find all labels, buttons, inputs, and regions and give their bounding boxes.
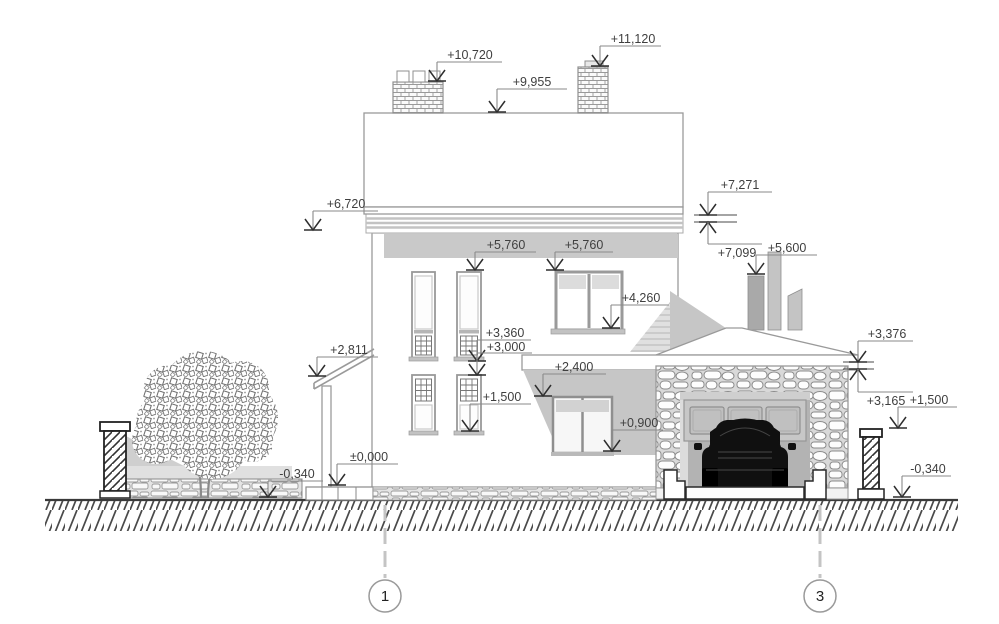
lower-window-left (409, 375, 438, 435)
level-label: +5,760 (565, 238, 604, 252)
level-roof-top: +9,955 (488, 75, 567, 112)
level-label: +2,400 (555, 360, 594, 374)
upper-window-left2 (454, 272, 484, 361)
level-label: +5,760 (487, 238, 526, 252)
chimney-right (578, 61, 608, 113)
level-label: -0,340 (910, 462, 945, 476)
elevation-canvas: 1 3 +10,720 +9,955 +11,120 +7,271 +7,0 (0, 0, 999, 624)
fence-post-left-base (100, 491, 130, 498)
level-label: +1,500 (483, 390, 522, 404)
level-garage-eaves-bottom: +3,165 (849, 369, 913, 408)
level-label: +9,955 (513, 75, 552, 89)
level-garage-eaves-top: +3,376 (843, 327, 913, 369)
fence-post-right-base (858, 489, 884, 499)
roof-fascia (364, 207, 683, 214)
level-label: +5,600 (768, 241, 807, 255)
house-plinth (373, 487, 656, 500)
axis-3-label: 3 (816, 588, 824, 605)
tree-canopy (132, 351, 278, 479)
frieze-band (384, 234, 678, 258)
level-label: ±0,000 (350, 450, 388, 464)
elevation-drawing: 1 3 +10,720 +9,955 +11,120 +7,271 +7,0 (0, 0, 999, 624)
level-label: +3,376 (868, 327, 907, 341)
level-label: +2,811 (330, 343, 368, 357)
porch (306, 349, 374, 500)
level-label: +3,165 (867, 394, 906, 408)
level-label: +7,099 (718, 246, 757, 260)
level-label: +11,120 (611, 32, 656, 46)
axis-1-label: 1 (381, 588, 389, 605)
level-ground-right: -0,340 (893, 462, 951, 497)
upper-window-left (409, 272, 438, 361)
level-roof-edge-top: +7,271 (694, 178, 772, 222)
level-label: +7,271 (721, 178, 760, 192)
eaves-band (366, 214, 683, 233)
fence-post-right-cap (860, 429, 882, 437)
level-label: +3,360 (486, 326, 525, 340)
chimney-left (393, 71, 443, 113)
right-fence (858, 429, 884, 499)
garage-apron (686, 487, 804, 499)
level-label: +3,000 (487, 340, 526, 354)
level-roof-edge-bottom: +7,099 (699, 222, 762, 260)
fence-post-left (104, 431, 126, 491)
garage-opening (664, 392, 826, 499)
fence-post-right (863, 437, 879, 489)
porch-slab (306, 487, 373, 500)
porch-post (322, 386, 331, 487)
fence-post-left-cap (100, 422, 130, 431)
level-label: +1,500 (910, 393, 949, 407)
level-flue-top: +5,600 (747, 241, 817, 274)
level-label: -0,340 (279, 467, 314, 481)
level-label: +6,720 (327, 197, 366, 211)
fence-wall-base (126, 479, 302, 498)
main-roof (364, 113, 683, 207)
level-label: +10,720 (447, 48, 493, 62)
level-label: +0,900 (620, 416, 659, 430)
level-label: +4,260 (622, 291, 661, 305)
lower-window-left2 (454, 375, 484, 435)
terrace-window (551, 397, 614, 456)
